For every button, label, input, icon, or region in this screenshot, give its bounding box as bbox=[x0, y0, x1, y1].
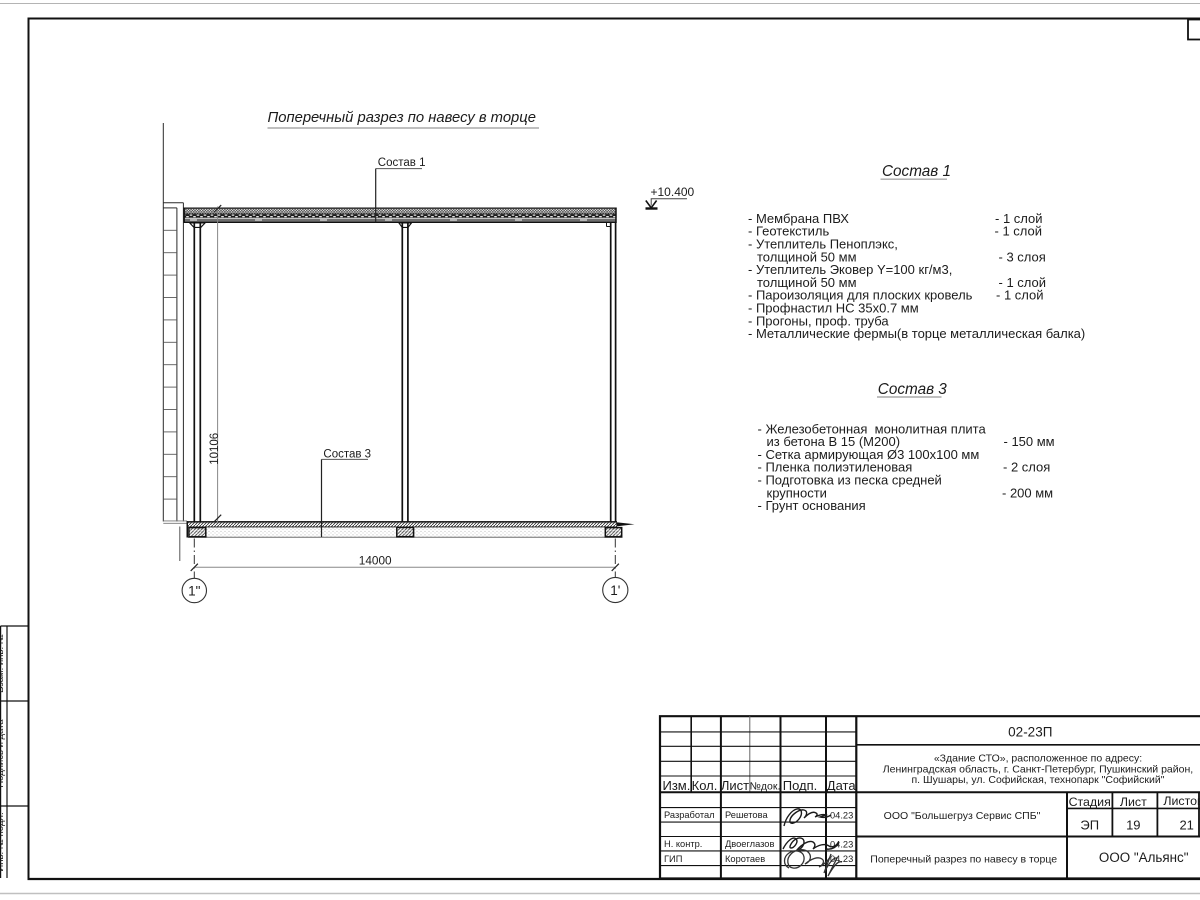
svg-text:Решетова: Решетова bbox=[725, 810, 768, 820]
svg-text:Подпись и дата: Подпись и дата bbox=[0, 719, 6, 788]
svg-text:- 150 мм: - 150 мм bbox=[1004, 434, 1055, 449]
svg-text:Коротаев: Коротаев bbox=[725, 854, 765, 864]
svg-text:1": 1" bbox=[188, 584, 201, 599]
svg-text:Н. контр.: Н. контр. bbox=[664, 839, 702, 849]
svg-text:- 200 мм: - 200 мм bbox=[1002, 485, 1053, 500]
svg-text:Подп.: Подп. bbox=[783, 778, 818, 793]
svg-text:04.23: 04.23 bbox=[830, 811, 853, 821]
svg-text:04.23: 04.23 bbox=[830, 854, 853, 864]
svg-text:ЭП: ЭП bbox=[1080, 818, 1099, 833]
svg-text:ООО "Альянс": ООО "Альянс" bbox=[1099, 850, 1189, 865]
svg-text:Состав 3: Состав 3 bbox=[878, 381, 948, 398]
svg-text:Листов: Листов bbox=[1163, 794, 1200, 808]
svg-text:Кол.: Кол. bbox=[692, 778, 718, 793]
svg-text:Двоеглазов: Двоеглазов bbox=[725, 839, 774, 849]
svg-text:Лист: Лист bbox=[1120, 795, 1147, 809]
svg-text:- 1 слой: - 1 слой bbox=[996, 288, 1044, 303]
svg-text:- Грунт основания: - Грунт основания bbox=[758, 498, 866, 513]
svg-text:21: 21 bbox=[1179, 818, 1193, 833]
svg-text:Инв. № подл.: Инв. № подл. bbox=[0, 812, 6, 871]
svg-text:Поперечный разрез по навесу в: Поперечный разрез по навесу в торце bbox=[870, 853, 1057, 865]
svg-text:Поперечный разрез по навесу в: Поперечный разрез по навесу в торце bbox=[268, 110, 536, 126]
svg-text:- 1 слой: - 1 слой bbox=[995, 224, 1043, 239]
svg-text:- Металлические фермы(в торце: - Металлические фермы(в торце металличес… bbox=[748, 326, 1085, 341]
svg-text:Дата: Дата bbox=[827, 778, 857, 793]
svg-text:Лист: Лист bbox=[721, 778, 749, 793]
svg-text:14000: 14000 bbox=[359, 553, 392, 567]
svg-text:№док.: №док. bbox=[750, 781, 781, 793]
svg-text:Разработал: Разработал bbox=[664, 810, 715, 820]
svg-text:10106: 10106 bbox=[209, 433, 221, 465]
svg-text:Состав 3: Состав 3 bbox=[323, 449, 371, 461]
svg-text:- 2 слоя: - 2 слоя bbox=[1003, 460, 1050, 475]
svg-text:Стадия: Стадия bbox=[1069, 795, 1111, 809]
svg-text:02-23П: 02-23П bbox=[1008, 725, 1052, 740]
svg-text:1': 1' bbox=[610, 583, 620, 598]
svg-text:- 3 слоя: - 3 слоя bbox=[999, 249, 1046, 264]
svg-text:19: 19 bbox=[1126, 818, 1140, 833]
svg-text:Изм.: Изм. bbox=[662, 778, 690, 793]
svg-text:Состав 1: Состав 1 bbox=[378, 157, 426, 169]
svg-text:Состав 1: Состав 1 bbox=[882, 163, 951, 180]
svg-text:04.23: 04.23 bbox=[830, 840, 853, 850]
svg-text:+10.400: +10.400 bbox=[651, 185, 695, 199]
svg-text:п. Шушары, ул. Софийская, техн: п. Шушары, ул. Софийская, технопарк "Соф… bbox=[912, 774, 1165, 786]
svg-text:ООО "Большегруз Сервис СПБ": ООО "Большегруз Сервис СПБ" bbox=[884, 810, 1041, 822]
svg-text:ГИП: ГИП bbox=[664, 854, 682, 864]
svg-text:Взам. инв. №: Взам. инв. № bbox=[0, 634, 6, 693]
